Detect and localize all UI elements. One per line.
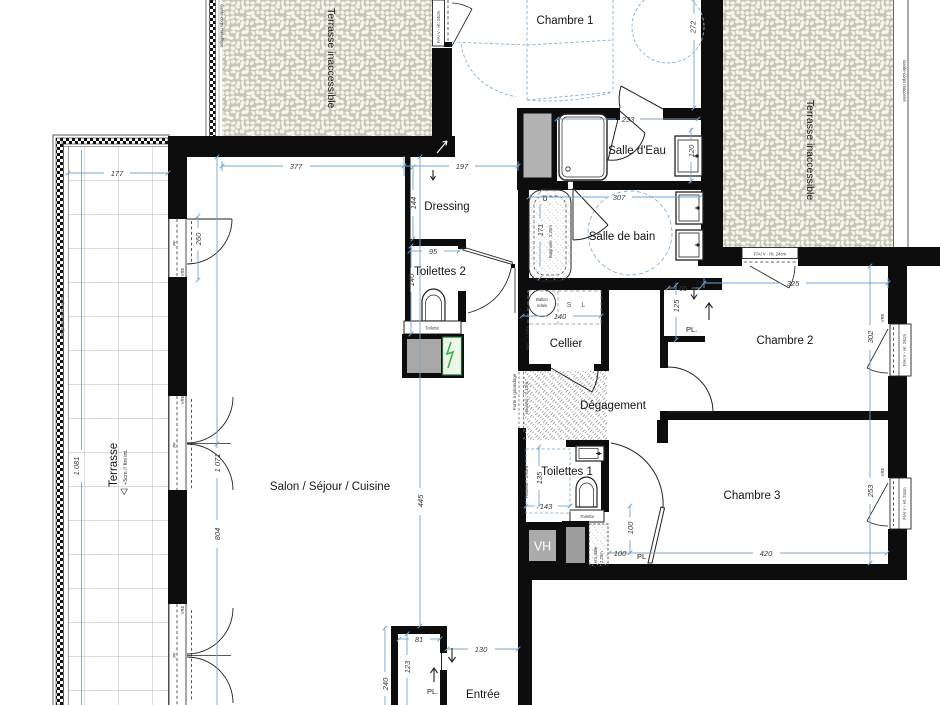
- svg-text:95: 95: [429, 247, 438, 256]
- svg-text:PL: PL: [637, 552, 646, 561]
- svg-text:420: 420: [760, 549, 773, 558]
- svg-text:+5cm // fini int.: +5cm // fini int.: [123, 449, 129, 485]
- svg-text:Salle d'Eau: Salle d'Eau: [608, 145, 666, 157]
- svg-text:177: 177: [111, 169, 124, 178]
- svg-text:F/AI V - Ht. 24cm: F/AI V - Ht. 24cm: [754, 252, 787, 257]
- svg-text:1.081: 1.081: [72, 457, 81, 476]
- svg-text:260: 260: [194, 232, 203, 246]
- svg-text:233: 233: [621, 115, 635, 124]
- svg-text:125: 125: [672, 299, 681, 312]
- svg-text:Baignoire : 2,20m: Baignoire : 2,20m: [548, 225, 553, 258]
- svg-text:307: 307: [613, 193, 626, 202]
- svg-text:Garde-corps maçonné: Garde-corps maçonné: [902, 60, 907, 102]
- svg-text:VRE: VRE: [180, 605, 185, 614]
- svg-text:130: 130: [475, 645, 488, 654]
- svg-text:100: 100: [626, 521, 635, 534]
- svg-text:S L: S L: [567, 302, 590, 309]
- svg-text:Terrasse: Terrasse: [108, 443, 120, 487]
- svg-text:65: 65: [679, 284, 688, 293]
- svg-text:F/AI V - Ht. 24cm: F/AI V - Ht. 24cm: [436, 10, 441, 43]
- svg-text:325: 325: [787, 279, 800, 288]
- svg-text:Dégagement: Dégagement: [580, 400, 647, 412]
- svg-text:804: 804: [213, 528, 222, 541]
- svg-text:F/AI V - Ht. 24cm: F/AI V - Ht. 24cm: [902, 487, 907, 520]
- svg-text:Chambre 3: Chambre 3: [724, 490, 781, 502]
- svg-text:1 071: 1 071: [213, 454, 222, 473]
- svg-text:445: 445: [416, 494, 425, 507]
- svg-text:120: 120: [687, 144, 696, 157]
- svg-text:VRE: VRE: [880, 467, 885, 476]
- svg-text:197: 197: [456, 162, 469, 171]
- svg-text:Terrasse inaccessible: Terrasse inaccessible: [804, 100, 816, 201]
- svg-text:VRE: VRE: [180, 395, 185, 404]
- svg-text:123: 123: [403, 660, 412, 673]
- svg-text:Toilettes 1: Toilettes 1: [541, 466, 593, 478]
- svg-text:H.s.dalle: H.s.dalle: [593, 546, 598, 563]
- svg-text:VRE: VRE: [180, 267, 185, 276]
- svg-text:Salle de bain: Salle de bain: [589, 231, 656, 243]
- svg-text:PL.: PL.: [427, 687, 438, 696]
- svg-text:Ballon: Ballon: [536, 297, 548, 302]
- svg-text:relais: relais: [537, 303, 547, 308]
- svg-text:Salon / Séjour / Cuisine: Salon / Séjour / Cuisine: [270, 481, 390, 493]
- svg-text:Entrée: Entrée: [466, 689, 500, 701]
- svg-text:VH: VH: [534, 540, 551, 554]
- svg-text:Chambre 1: Chambre 1: [537, 15, 594, 27]
- svg-text:Garde-corps métallique: Garde-corps métallique: [60, 295, 65, 339]
- svg-text:PF: PF: [172, 240, 177, 246]
- svg-text:Toilette: Toilette: [425, 326, 440, 331]
- svg-text:F/AI V - Ht. 24cm: F/AI V - Ht. 24cm: [902, 333, 907, 366]
- svg-text:Garde-corps métallique: Garde-corps métallique: [220, 4, 225, 48]
- svg-text:Terrasse inaccessible: Terrasse inaccessible: [325, 8, 337, 109]
- svg-text:144: 144: [409, 197, 418, 210]
- svg-text:Hauteur : 2,12m: Hauteur : 2,12m: [524, 382, 529, 415]
- svg-text:Dressing: Dressing: [424, 201, 469, 213]
- svg-text:Toilette: Toilette: [580, 514, 595, 519]
- svg-text:Hauteur : 2,53m: Hauteur : 2,53m: [524, 466, 529, 499]
- svg-text:Hsp : 2,53m: Hsp : 2,53m: [525, 326, 530, 351]
- svg-text:VRE: VRE: [880, 313, 885, 322]
- svg-text:2,20m: 2,20m: [599, 551, 604, 563]
- svg-text:PF: PF: [172, 442, 177, 448]
- svg-text:Toilettes 2: Toilettes 2: [414, 266, 466, 278]
- svg-text:377: 377: [290, 162, 303, 171]
- svg-text:81: 81: [415, 635, 423, 644]
- svg-text:Chambre 2: Chambre 2: [757, 335, 814, 347]
- svg-text:PF: PF: [172, 652, 177, 658]
- svg-text:253: 253: [866, 484, 875, 498]
- svg-text:240: 240: [381, 677, 390, 691]
- svg-text:PL.: PL.: [686, 325, 697, 334]
- svg-text:171: 171: [536, 224, 545, 237]
- svg-text:140: 140: [554, 312, 567, 321]
- svg-text:272: 272: [689, 20, 698, 34]
- svg-text:143: 143: [540, 502, 553, 511]
- svg-text:Porte à galandage: Porte à galandage: [512, 373, 517, 410]
- svg-text:100: 100: [614, 549, 627, 558]
- svg-text:Cellier: Cellier: [550, 338, 583, 350]
- svg-text:302: 302: [866, 330, 875, 343]
